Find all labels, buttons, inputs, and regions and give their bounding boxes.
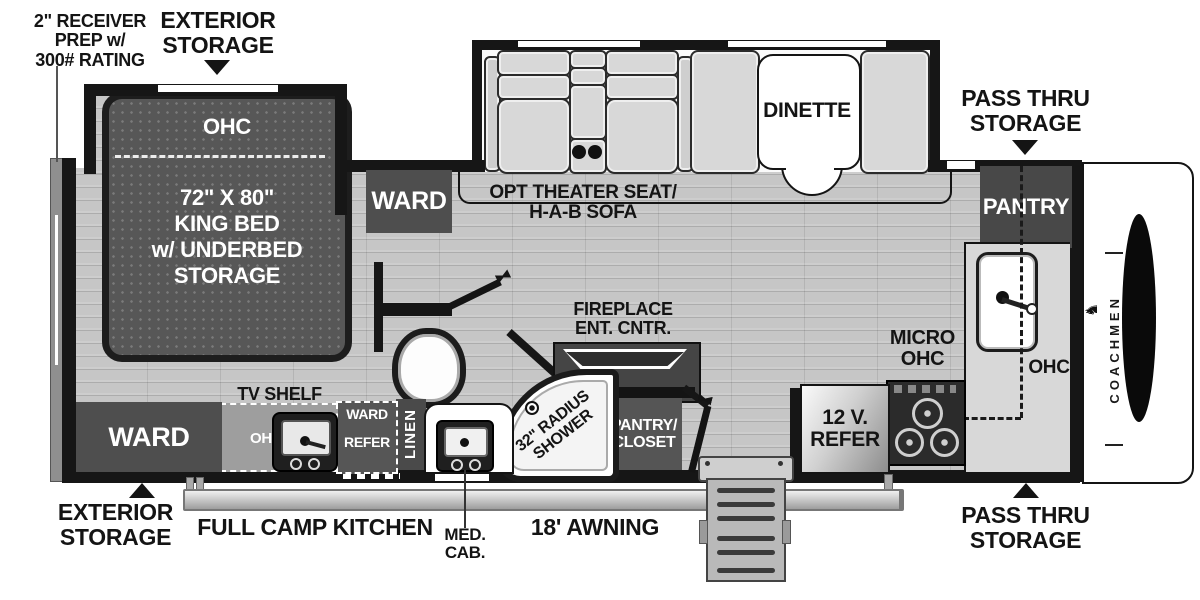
theater-seat-label: OPT THEATER SEAT/ H-A-B SOFA — [458, 183, 708, 224]
bed-slide-wall-left — [84, 84, 96, 174]
rear-wall — [62, 158, 76, 482]
pantry-label: PANTRY — [983, 195, 1069, 219]
wardrobe-top: WARD — [366, 170, 452, 233]
pantry-closet-label: PANTRY/ CLOSET — [611, 417, 677, 451]
arrow-exterior-storage-bottom — [129, 483, 155, 498]
wardrobe-bottom-label: WARD — [108, 423, 189, 452]
rear-bumper-trim — [55, 215, 58, 365]
receiver-pointer-line — [56, 66, 58, 162]
arrow-pass-thru-top — [1012, 140, 1038, 155]
vanity-knob — [469, 459, 481, 471]
camp-sink-knob — [308, 458, 320, 470]
vanity-faucet-icon — [460, 438, 469, 447]
tv-icon-screen — [566, 352, 684, 366]
ward-small-label: WARD — [338, 407, 396, 422]
vanity-sink — [436, 420, 494, 472]
callout-pass-thru-bottom: PASS THRU STORAGE — [948, 503, 1103, 552]
king-bed: OHC 72" X 80" KING BED w/ UNDERBED STORA… — [102, 92, 352, 362]
callout-exterior-storage-top: EXTERIOR STORAGE — [138, 8, 298, 57]
callout-awning: 18' AWNING — [500, 515, 690, 540]
brand-wordmark-text: COACHMEN — [1107, 295, 1122, 404]
refer-12v-label: 12 V. REFER — [810, 407, 880, 452]
sofa-back-right-1 — [605, 50, 679, 76]
dinette-bench-left — [690, 50, 760, 174]
step-tread — [717, 516, 775, 521]
wardrobe-top-label: WARD — [371, 188, 446, 215]
linen-cabinet: LINEN — [396, 399, 426, 470]
brand-wordmark: COACHMEN — [1096, 258, 1132, 440]
step-tread — [717, 550, 775, 555]
sofa-slide-wall-left — [472, 40, 482, 172]
vanity-knob — [451, 459, 463, 471]
sofa-console-body — [569, 84, 607, 140]
shower-head-icon — [525, 401, 539, 415]
dinette-table-seam — [786, 152, 834, 170]
cupholder-icon — [572, 145, 586, 159]
pass-thru-dash-horizontal — [963, 417, 1021, 420]
camp-sink-knob — [290, 458, 302, 470]
stove — [886, 380, 966, 466]
med-cab-pointer-line — [464, 470, 466, 528]
dinette-bench-right — [860, 50, 930, 174]
tv-shelf-label: TV SHELF — [222, 385, 337, 404]
callout-full-camp-kitchen: FULL CAMP KITCHEN — [190, 515, 440, 540]
step-tread — [717, 536, 775, 541]
sofa-slide-wall-right — [930, 40, 940, 172]
micro-ohc-label: MICRO OHC — [880, 328, 965, 371]
callout-med-cab: MED. CAB. — [438, 526, 492, 562]
bed-ohc-label: OHC — [109, 115, 345, 139]
sofa-seat-left — [497, 98, 571, 174]
callout-exterior-storage-bottom: EXTERIOR STORAGE — [38, 500, 193, 549]
window — [518, 41, 640, 47]
bed-ohc-divider — [115, 155, 325, 158]
sofa-back-right-2 — [605, 74, 679, 100]
bed-slide-wall-right — [335, 84, 347, 215]
kitchen-ohc-label: OHC — [1026, 358, 1072, 378]
sofa-back-left-1 — [497, 50, 571, 76]
refer-small-label: REFER — [338, 435, 396, 450]
wardrobe-bottom: WARD — [76, 402, 222, 472]
window — [728, 41, 886, 47]
step-tread — [717, 488, 775, 493]
window — [947, 161, 975, 169]
stove-burner — [912, 398, 943, 429]
floorplan-canvas: ♞ COACHMEN DINETTE OHC 72" X 80" KING BE… — [0, 0, 1200, 600]
refer-12v: 12 V. REFER — [800, 384, 890, 474]
bed-label: 72" X 80" KING BED w/ UNDERBED STORAGE — [109, 185, 345, 289]
entry-steps — [706, 478, 786, 582]
dinette-label: DINETTE — [757, 100, 857, 122]
linen-label: LINEN — [403, 409, 419, 459]
stove-burner — [930, 428, 959, 457]
sofa-seat-right — [605, 98, 679, 174]
toilet — [392, 328, 466, 408]
brand-rule-top — [1105, 252, 1123, 254]
sofa-back-left-2 — [497, 74, 571, 100]
stove-controls — [894, 385, 956, 393]
cupholder-icon — [588, 145, 602, 159]
step-tread — [717, 568, 775, 573]
stove-burner — [895, 428, 924, 457]
awning-bar — [183, 489, 904, 511]
pass-thru-dash-vertical — [1020, 166, 1023, 418]
pantry: PANTRY — [980, 166, 1072, 248]
arrow-exterior-storage-top — [204, 60, 230, 75]
step-side-tab — [782, 520, 791, 544]
ward-refer-cabinet: WARD REFER — [336, 401, 398, 474]
camp-kitchen-sink — [272, 412, 338, 472]
fireplace-label: FIREPLACE ENT. CNTR. — [550, 300, 696, 339]
arrow-pass-thru-bottom — [1013, 483, 1039, 498]
step-tread — [717, 502, 775, 507]
faucet-knob — [1026, 303, 1038, 315]
step-side-tab — [699, 520, 708, 544]
callout-pass-thru-top: PASS THRU STORAGE — [948, 86, 1103, 135]
brand-rule-bottom — [1105, 444, 1123, 446]
step-screw — [778, 461, 783, 466]
step-screw — [705, 461, 710, 466]
bath-wall-horizontal — [380, 303, 452, 316]
window — [158, 85, 278, 92]
